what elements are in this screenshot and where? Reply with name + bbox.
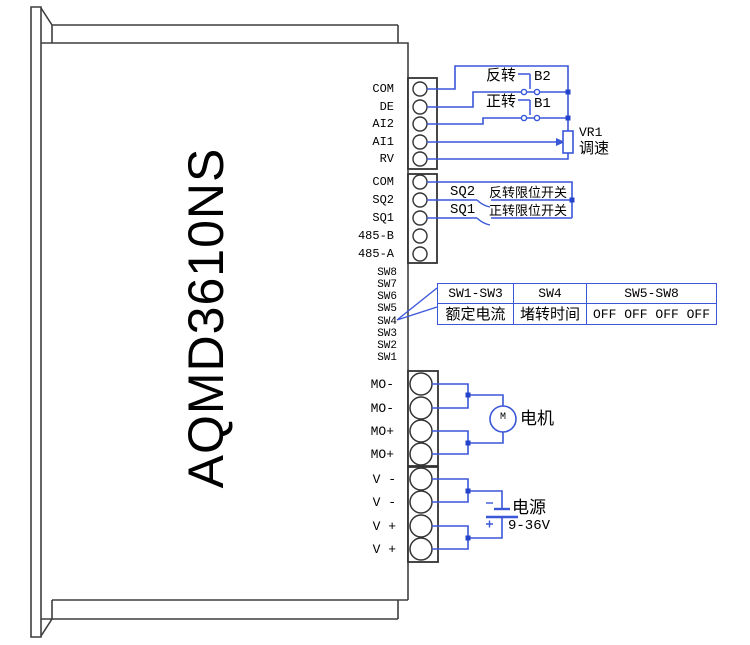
dip-table-header-sw1-sw3: SW1-SW3 <box>438 284 514 304</box>
heatsink-bar <box>31 7 41 637</box>
ai2-wire <box>427 118 568 124</box>
limit-switch-sq1-lever <box>477 218 490 225</box>
junction-dot <box>566 116 571 121</box>
dip-label-sw7: SW7 <box>377 279 397 291</box>
potentiometer-symbol <box>563 131 573 153</box>
dip-label-sw3: SW3 <box>377 328 397 340</box>
terminal-label-485a: 485-A <box>358 247 394 261</box>
screw-terminals-signal1 <box>413 82 427 166</box>
junction-dot <box>466 536 471 541</box>
dip-table-value-stall-time: 堵转时间 <box>514 304 587 324</box>
terminal-label-mo-plus-1: MO+ <box>371 424 394 439</box>
pot-id: VR1 <box>579 125 602 140</box>
terminal-label-v-plus-1: V + <box>373 519 396 534</box>
pushbutton-b1-lever <box>518 100 530 115</box>
dip-label-sw1: SW1 <box>377 352 397 364</box>
battery-plus-sign <box>486 521 493 528</box>
dip-label-sw5: SW5 <box>377 303 397 315</box>
forward-button-label: 正转 <box>486 93 516 110</box>
terminal-label-rv: RV <box>380 152 394 166</box>
pushbutton-b2-lever <box>518 74 530 89</box>
terminal-label-ai2: AI2 <box>372 117 394 131</box>
top-flange <box>41 8 398 43</box>
power-supply-voltage: 9-36V <box>508 518 550 534</box>
dip-label-sw8: SW8 <box>377 267 397 279</box>
junction-dot <box>466 393 471 398</box>
terminal-label-v-minus-1: V - <box>373 472 396 487</box>
reverse-limit-id: SQ2 <box>450 184 475 200</box>
terminal-label-ai1: AI1 <box>372 135 394 149</box>
bottom-flange <box>41 600 408 636</box>
terminal-label-v-minus-2: V - <box>373 495 396 510</box>
reverse-button-id: B2 <box>534 69 551 85</box>
dip-table-value-rated-current: 额定电流 <box>438 304 514 324</box>
screw-terminals-signal2 <box>413 175 427 261</box>
device-model-label: AQMD3610NS <box>178 58 234 578</box>
forward-limit-label: 正转限位开关 <box>489 203 567 218</box>
reverse-limit-label: 反转限位开关 <box>489 185 567 200</box>
body-right-edge <box>398 43 408 600</box>
reverse-button-label: 反转 <box>486 67 516 84</box>
terminal-label-v-plus-2: V + <box>373 542 396 557</box>
motor-label: 电机 <box>520 409 554 428</box>
junction-dot <box>466 489 471 494</box>
terminal-label-com: COM <box>372 82 394 96</box>
dip-table-header-sw4: SW4 <box>514 284 587 304</box>
junction-dot <box>566 90 571 95</box>
dip-label-sw6: SW6 <box>377 291 397 303</box>
terminal-label-mo-plus-2: MO+ <box>371 447 394 462</box>
dip-label-sw4: SW4 <box>377 316 397 328</box>
power-supply-label: 电源 <box>512 498 546 517</box>
terminal-label-sq2: SQ2 <box>372 193 394 207</box>
dip-callout-lines <box>397 288 437 320</box>
rv-wire <box>427 153 568 159</box>
junction-dot <box>570 198 575 203</box>
motor-m-symbol: M <box>491 412 515 423</box>
dip-config-table: SW1-SW3 SW4 SW5-SW8 额定电流 堵转时间 OFF OFF OF… <box>437 283 717 325</box>
forward-button-id: B1 <box>534 96 551 112</box>
terminal-label-mo-minus-1: MO- <box>371 377 394 392</box>
terminal-label-de: DE <box>380 100 394 114</box>
dip-label-sw2: SW2 <box>377 340 397 352</box>
dip-table-header-sw5-sw8: SW5-SW8 <box>587 284 716 304</box>
terminal-label-com2: COM <box>372 175 394 189</box>
junction-dot <box>466 441 471 446</box>
dip-table-value-sw5-sw8-state: OFF OFF OFF OFF <box>587 304 716 324</box>
wiring-diagram: AQMD3610NS COM DE AI2 AI1 RV COM SQ2 SQ1… <box>0 0 750 645</box>
terminal-label-sq1: SQ1 <box>372 211 394 225</box>
forward-limit-id: SQ1 <box>450 202 475 218</box>
terminal-label-485b: 485-B <box>358 229 394 243</box>
terminal-label-mo-minus-2: MO- <box>371 401 394 416</box>
pot-label: 调速 <box>579 140 609 157</box>
